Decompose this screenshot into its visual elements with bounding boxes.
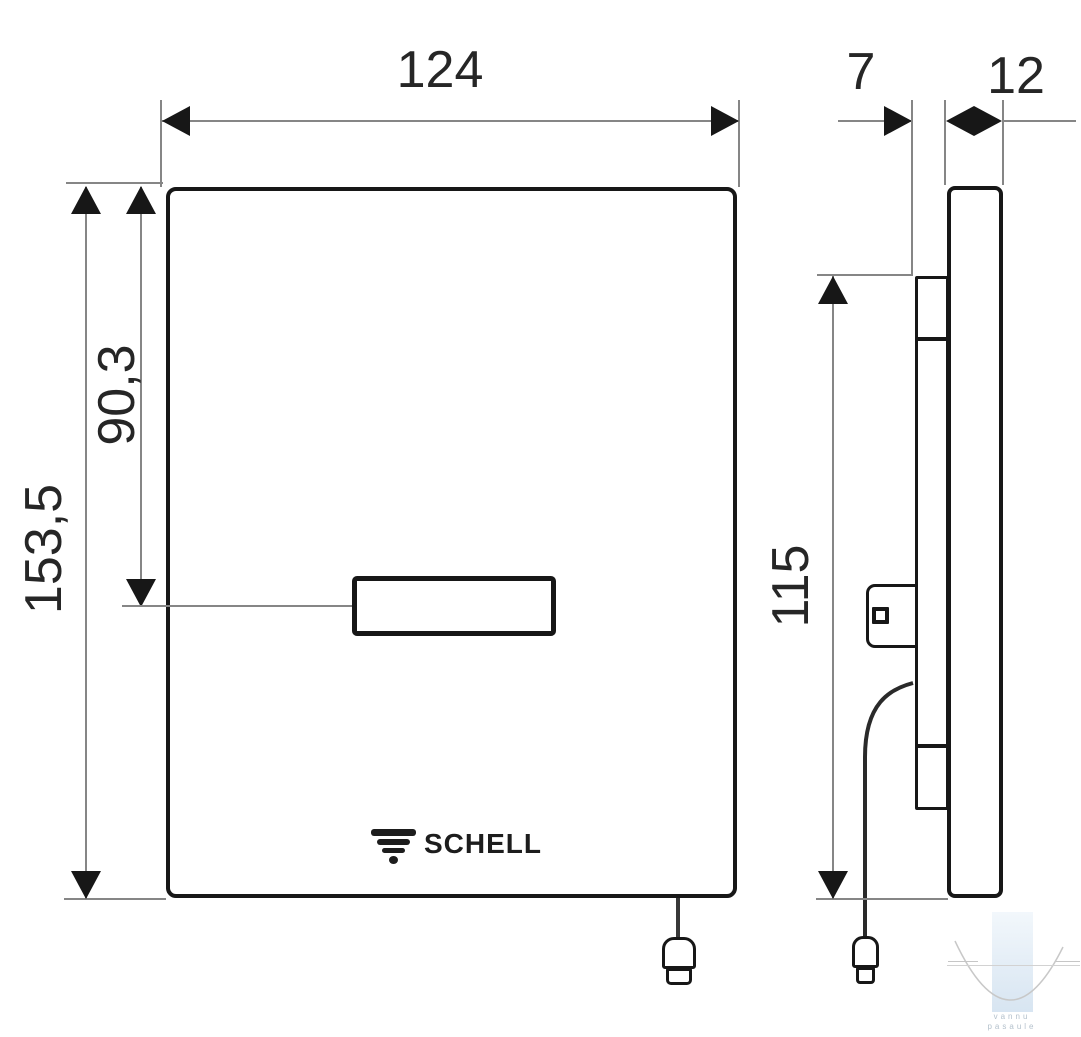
dimension-value: 153,5 [18, 484, 70, 614]
front-plug-tip [666, 968, 692, 985]
arrowhead-right-icon [974, 106, 1002, 136]
dimension-value: 7 [847, 46, 876, 98]
arrowhead-down-icon [71, 871, 101, 899]
side-plug-body [852, 936, 879, 968]
mounting-frame-outline [915, 276, 949, 810]
dimension-value: 124 [397, 44, 484, 96]
watermark-text-line1: vannu [994, 1013, 1031, 1022]
front-cable [676, 898, 680, 938]
brand-wordmark: SCHELL [424, 830, 542, 858]
back-clip-hole [872, 607, 889, 624]
arrowhead-right-icon [711, 106, 739, 136]
extension-line [1002, 100, 1004, 185]
watermark-line [1056, 961, 1080, 962]
side-plug-tip [856, 967, 875, 984]
arrowhead-up-icon [818, 276, 848, 304]
dimension-value: 90,3 [91, 344, 143, 445]
dimension-tail-line [1004, 120, 1076, 122]
sensor-window-outline [352, 576, 556, 636]
dimension-line [832, 276, 834, 899]
front-plug-body [662, 937, 696, 969]
frame-divider [916, 744, 948, 748]
dimension-value: 115 [765, 545, 817, 628]
dimension-line [85, 187, 87, 899]
leader-line [122, 605, 352, 607]
arrowhead-down-icon [818, 871, 848, 899]
watermark-line [947, 965, 1080, 966]
technical-drawing: SCHELL 124 153,5 90,3 [0, 0, 1081, 1037]
dimension-line [162, 120, 739, 122]
side-panel-outline [947, 186, 1003, 898]
extension-line [911, 100, 913, 276]
front-panel-outline [166, 187, 737, 898]
watermark-line [948, 961, 978, 962]
arrowhead-left-icon [946, 106, 974, 136]
extension-line [66, 182, 163, 184]
frame-divider [916, 337, 948, 341]
arrowhead-down-icon [126, 579, 156, 607]
dimension-value: 12 [987, 50, 1045, 102]
arrowhead-up-icon [126, 186, 156, 214]
arrowhead-up-icon [71, 186, 101, 214]
arrowhead-right-icon [884, 106, 912, 136]
arrowhead-left-icon [162, 106, 190, 136]
watermark-band [992, 912, 1033, 1012]
watermark-text-line2: pasaule [987, 1023, 1036, 1032]
